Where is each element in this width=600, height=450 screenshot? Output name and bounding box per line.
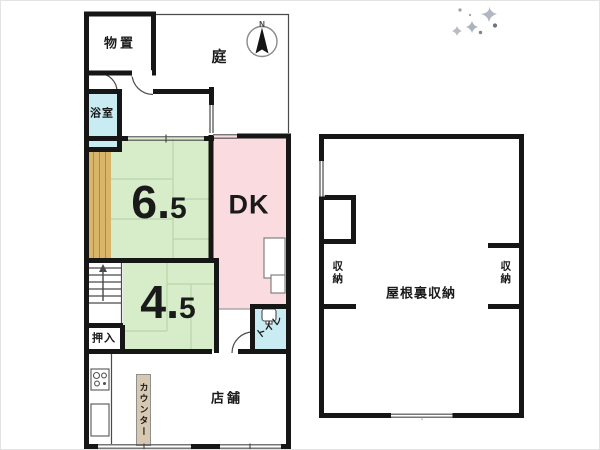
oshiire-closet-label: 押入	[92, 334, 116, 345]
walls	[84, 14, 524, 447]
tatami-4-5-label: 4.5	[140, 279, 195, 326]
sink-icon	[91, 404, 109, 436]
bathroom-label: 浴室	[90, 109, 114, 120]
floorplan-linework: N	[1, 1, 600, 450]
storage-shed-label: 物置	[104, 37, 136, 50]
stove-icon	[91, 369, 109, 390]
bathroom-door-arc	[99, 74, 117, 92]
dining-kitchen-label: DK	[229, 192, 270, 219]
compass-icon: N	[247, 20, 277, 57]
sparkles-decoration	[452, 6, 497, 36]
shop-label: 店舗	[211, 392, 243, 405]
attic-closet-left-label: 収納	[332, 261, 343, 286]
compass-north-label: N	[259, 20, 265, 29]
attic-closet-right-label: 収納	[500, 261, 511, 286]
floorplan-canvas: N 物置 庭 浴室 6.5 DK 4.5 押入 トイレ カウンター 店舗 収納 …	[0, 0, 600, 450]
tatami-6-5-label: 6.5	[131, 179, 186, 226]
attic-storage-label: 屋根裏収納	[386, 287, 456, 300]
counter-label: カウンター	[139, 383, 148, 438]
garden-label: 庭	[211, 50, 226, 65]
kitchen-unit-icon	[264, 238, 285, 293]
